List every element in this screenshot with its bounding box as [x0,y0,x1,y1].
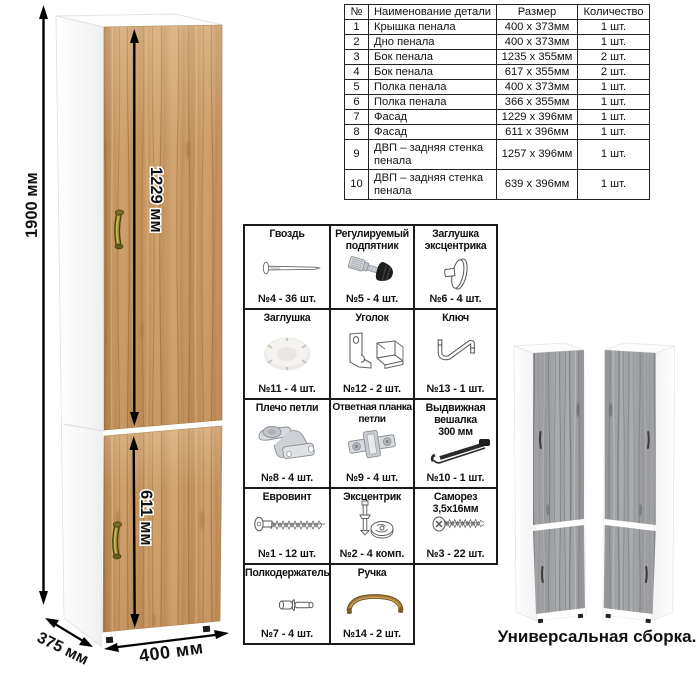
svg-text:611 мм: 611 мм [137,490,155,546]
svg-text:1229 мм: 1229 мм [147,167,165,233]
svg-text:1900 мм: 1900 мм [23,172,41,238]
svg-text:400 мм: 400 мм [138,637,205,666]
svg-text:375 мм: 375 мм [34,629,91,668]
